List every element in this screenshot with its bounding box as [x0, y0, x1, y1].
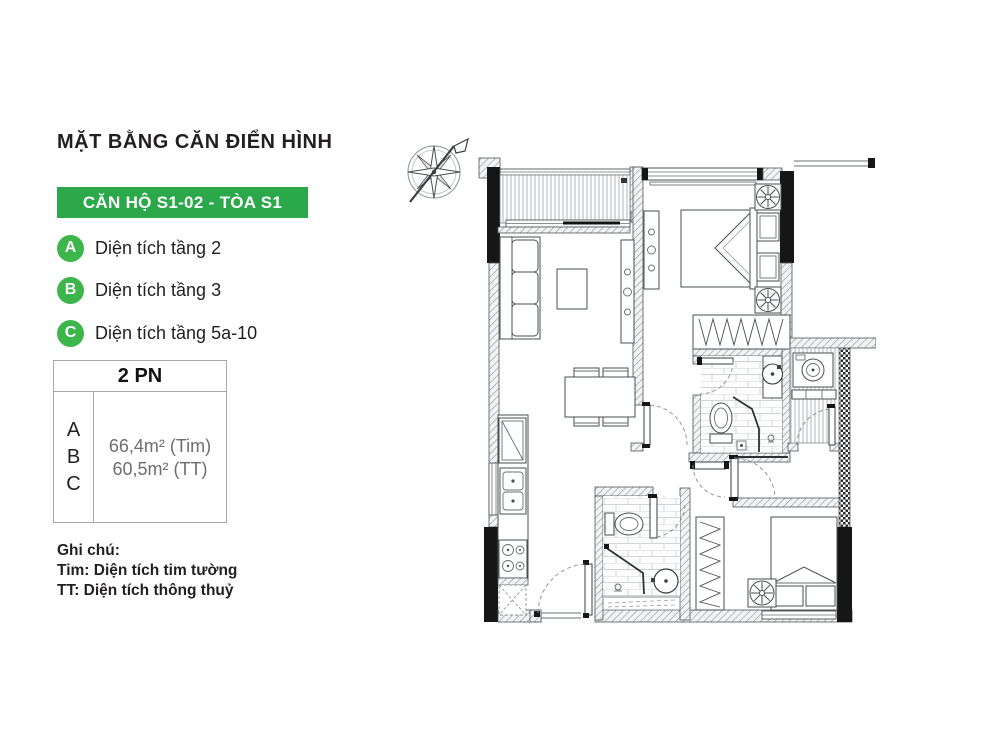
column [484, 527, 498, 622]
badge-b: B [57, 277, 84, 304]
bathtub [603, 597, 680, 610]
page-title: MẶT BẰNG CĂN ĐIỂN HÌNH [57, 131, 332, 154]
curtain-rail [650, 182, 756, 185]
legend-item-a: A Diện tích tầng 2 [57, 234, 221, 262]
fridge [499, 418, 526, 463]
toilet [605, 513, 643, 535]
bedroom-2 [696, 455, 837, 619]
bedroom1-window [642, 168, 763, 185]
tv-console [621, 240, 634, 343]
sofa [500, 237, 540, 339]
shaft [499, 585, 526, 615]
wardrobe [696, 517, 724, 610]
notes-block: Ghi chú: Tim: Diện tích tim tường TT: Di… [57, 541, 237, 601]
badge-a: A [57, 235, 84, 262]
laundry-shelf [792, 390, 836, 399]
key-c: C [66, 473, 80, 496]
area-tt: 60,5m² (TT) [112, 458, 207, 481]
ceiling-fan [748, 579, 776, 607]
ceiling-fan [755, 184, 781, 210]
console-table [644, 211, 659, 289]
floor-drain [621, 178, 627, 183]
key-a: A [67, 419, 80, 442]
hall-door [690, 461, 729, 497]
bedroom1-door [642, 402, 687, 448]
kitchen [498, 415, 528, 615]
legend-label-c: Diện tích tầng 5a-10 [95, 323, 257, 344]
compass-flag [454, 139, 468, 153]
notes-line-tim: Tim: Diện tích tim tường [57, 561, 237, 581]
dining-set [565, 368, 635, 426]
stove [499, 540, 527, 578]
exterior-checker-wall [839, 348, 850, 527]
unit-banner: CĂN HỘ S1-02 - TÒA S1 [57, 187, 308, 218]
entry-door [534, 560, 592, 618]
balcony [498, 169, 630, 233]
bedroom2-window [762, 611, 836, 619]
nightstand [757, 253, 779, 281]
column [837, 527, 852, 622]
area-table-values: 66,4m² (Tim) 60,5m² (TT) [94, 392, 226, 523]
area-tim: 66,4m² (Tim) [109, 435, 211, 458]
ceiling-fan [755, 287, 781, 313]
legend-item-b: B Diện tích tầng 3 [57, 276, 221, 304]
nightstand [757, 213, 779, 241]
legend-label-b: Diện tích tầng 3 [95, 280, 221, 301]
column [780, 171, 794, 263]
floorplan-page: MẶT BẰNG CĂN ĐIỂN HÌNH CĂN HỘ S1-02 - TÒ… [0, 0, 1000, 750]
key-b: B [67, 446, 80, 469]
living-room [500, 237, 635, 426]
notes-line-tt: TT: Diện tích thông thuỷ [57, 581, 237, 601]
legend-item-c: C Diện tích tầng 5a-10 [57, 319, 257, 347]
bed [771, 517, 837, 610]
vanity-sink [763, 356, 783, 398]
column [487, 167, 500, 263]
washing-machine [793, 353, 833, 387]
legend-label-a: Diện tích tầng 2 [95, 238, 221, 259]
kitchen-sink [500, 468, 526, 514]
utility-balcony [790, 348, 839, 445]
coffee-table [557, 269, 587, 309]
floorplan-drawing [478, 147, 876, 647]
compass-rose-icon [398, 120, 470, 208]
notes-heading: Ghi chú: [57, 541, 237, 561]
badge-c: C [57, 320, 84, 347]
wardrobe [693, 315, 790, 349]
toilet [710, 403, 732, 443]
bathroom-2 [603, 494, 685, 610]
sliding-door [506, 220, 630, 227]
area-table: 2 PN A B C 66,4m² (Tim) 60,5m² (TT) [53, 360, 227, 523]
area-table-keys: A B C [54, 392, 94, 523]
exterior-ledge [794, 158, 875, 168]
area-table-header: 2 PN [54, 361, 226, 392]
bed [681, 208, 757, 289]
